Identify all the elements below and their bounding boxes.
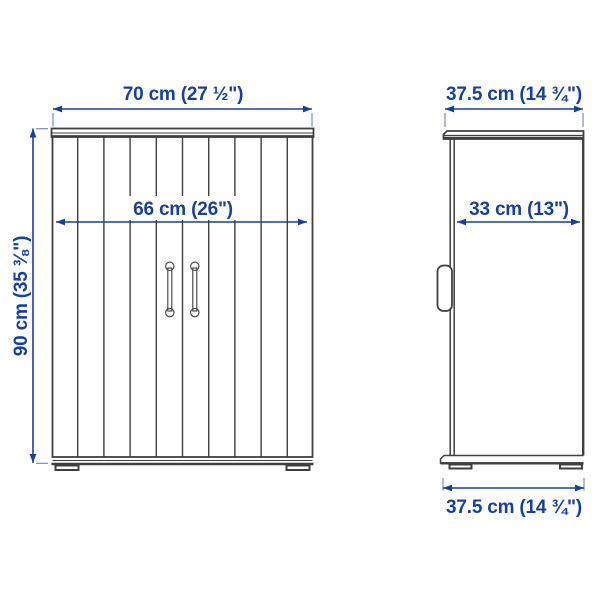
side-body xyxy=(450,139,583,456)
front-foot-right xyxy=(287,466,310,471)
arrowhead-down-icon xyxy=(30,454,37,463)
side-handle xyxy=(438,266,453,312)
side-foot-front xyxy=(450,465,472,469)
diagram-canvas: 70 cm (27 ½") 66 cm (26") 90 cm (35 ⅜") xyxy=(0,0,600,600)
arrowhead-right-icon xyxy=(571,219,580,226)
arrowhead-right-icon xyxy=(574,106,583,113)
arrowhead-left-icon xyxy=(457,219,466,226)
side-cornice xyxy=(444,131,584,139)
arrowhead-left-icon xyxy=(445,106,454,113)
front-body xyxy=(53,137,313,457)
dimension-label-side-depth-top: 37.5 cm (14 ¾") xyxy=(446,84,582,105)
dimension-side-depth-top: 37.5 cm (14 ¾") xyxy=(445,84,583,127)
dimension-label-side-depth-bottom: 37.5 cm (14 ¾") xyxy=(446,497,582,518)
dimension-label-height: 90 cm (35 ⅜") xyxy=(11,236,32,356)
arrowhead-left-icon xyxy=(53,106,62,113)
arrowhead-up-icon xyxy=(30,129,37,138)
arrowhead-right-icon xyxy=(575,485,584,492)
dimension-diagram: 70 cm (27 ½") 66 cm (26") 90 cm (35 ⅜") xyxy=(0,0,600,600)
side-base xyxy=(441,456,584,469)
dimension-side-depth-bottom: 37.5 cm (14 ¾") xyxy=(443,478,584,518)
side-view xyxy=(438,131,584,469)
dimension-label-front-width: 70 cm (27 ½") xyxy=(123,84,243,105)
dimension-height: 90 cm (35 ⅜") xyxy=(11,129,48,464)
dimension-front-width: 70 cm (27 ½") xyxy=(53,84,312,127)
arrowhead-right-icon xyxy=(303,106,312,113)
front-foot-left xyxy=(56,466,79,471)
side-foot-back xyxy=(560,465,582,469)
front-base xyxy=(52,461,314,471)
front-view xyxy=(52,129,314,471)
front-cornice xyxy=(52,129,314,138)
dimension-side-inner-depth: 33 cm (13") xyxy=(457,199,580,225)
dimension-label-side-inner-depth: 33 cm (13") xyxy=(469,199,569,220)
arrowhead-left-icon xyxy=(443,485,452,492)
dimension-label-front-inner-width: 66 cm (26") xyxy=(133,199,233,220)
